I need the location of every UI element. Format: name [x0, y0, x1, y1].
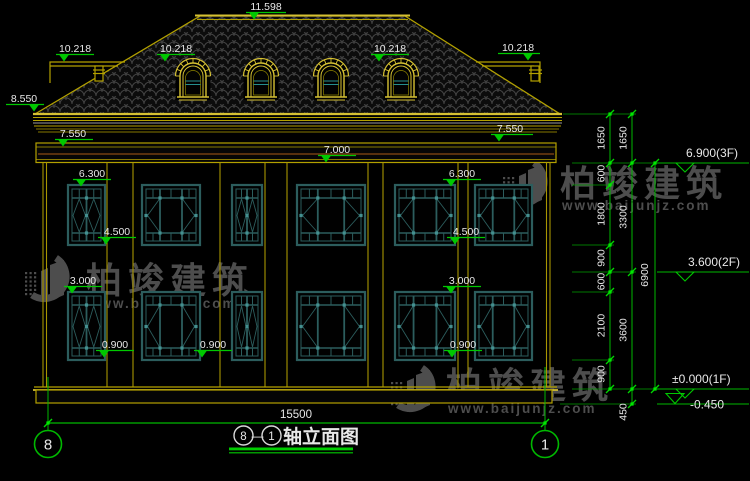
level-marker-label: 3.000	[70, 275, 96, 287]
window-grip	[245, 196, 248, 199]
window-grip	[245, 214, 248, 217]
window-grip	[412, 231, 415, 234]
level-marker-label: 0.900	[102, 339, 128, 351]
level-marker-label: 10.218	[59, 43, 91, 55]
window-grip	[343, 231, 346, 234]
dim-label: 1650	[596, 126, 608, 150]
dim-node	[608, 270, 611, 273]
window-grip	[85, 214, 88, 217]
window	[68, 292, 105, 360]
window	[395, 185, 455, 245]
window-grip	[180, 231, 183, 234]
window-grip	[158, 231, 161, 234]
window-grip	[513, 196, 516, 199]
window-grip	[85, 346, 88, 349]
level-marker-label: 10.218	[502, 42, 534, 54]
window-grip	[412, 346, 415, 349]
window-grip	[343, 346, 346, 349]
level-marker-label: 10.218	[374, 43, 406, 55]
level-marker-label: 4.500	[453, 226, 479, 238]
level-marker-label: 0.900	[200, 339, 226, 351]
title-text: 轴立面图	[283, 425, 359, 448]
window-grip	[359, 325, 362, 328]
dim-node	[608, 183, 611, 186]
dim-label: 3600	[618, 318, 630, 342]
window-grip	[477, 325, 480, 328]
axis-bubble-right-label: 1	[541, 437, 549, 454]
dim-node	[608, 112, 611, 115]
level-marker-label: 7.550	[497, 123, 523, 135]
window-grip	[316, 346, 319, 349]
dim-label: 900	[596, 365, 608, 383]
window-grip	[245, 231, 248, 234]
window-grip	[158, 346, 161, 349]
cad-elevation-screenshot: 柏竣建筑 www.baijunjz.com 柏竣建筑 www.baijunjz.…	[0, 0, 750, 481]
window-grip	[449, 214, 452, 217]
window	[395, 292, 455, 360]
window-grip	[526, 325, 529, 328]
level-marker-label: 3.000	[449, 275, 475, 287]
window-grip	[158, 196, 161, 199]
dim-node	[630, 161, 633, 164]
window-grip	[435, 231, 438, 234]
window-grip	[491, 303, 494, 306]
window-grip	[491, 196, 494, 199]
window-grip	[299, 214, 302, 217]
window-grip	[194, 214, 197, 217]
dim-label: 1650	[618, 126, 630, 150]
dim-label: 450	[618, 403, 630, 421]
dim-node	[608, 387, 611, 390]
window	[68, 185, 105, 245]
dim-node	[608, 358, 611, 361]
window-grip	[449, 325, 452, 328]
window-grip	[397, 214, 400, 217]
level-label-2F: 3.600(2F)	[688, 255, 740, 269]
window-grip	[435, 346, 438, 349]
elevation-drawing-canvas: 柏竣建筑 www.baijunjz.com 柏竣建筑 www.baijunjz.…	[0, 0, 750, 481]
window-grip	[491, 346, 494, 349]
dim-node	[630, 112, 633, 115]
window-grip	[85, 303, 88, 306]
window-grip	[412, 303, 415, 306]
window-grip	[144, 214, 147, 217]
window	[297, 185, 365, 245]
window-grip	[526, 214, 529, 217]
level-marker-label: 4.500	[104, 226, 130, 238]
level-marker-label: 7.000	[324, 144, 350, 156]
level-label-1F: ±0.000(1F)	[672, 372, 731, 386]
plinth	[33, 387, 558, 403]
dim-node	[653, 387, 656, 390]
window	[475, 292, 532, 360]
window-grip	[180, 346, 183, 349]
title-underline-thick	[229, 448, 353, 451]
window-grip	[435, 303, 438, 306]
window	[142, 185, 200, 245]
level-marker-label: 6.300	[449, 168, 475, 180]
dim-node	[630, 402, 633, 405]
dim-label: 6900	[639, 263, 651, 287]
window-grip	[180, 196, 183, 199]
dim-node	[608, 161, 611, 164]
window-grip	[513, 231, 516, 234]
window	[232, 185, 262, 245]
dim-node	[653, 161, 656, 164]
dim-label: 900	[596, 249, 608, 267]
window	[297, 292, 365, 360]
level-marker-label: 10.218	[160, 43, 192, 55]
window	[475, 185, 532, 245]
window-grip	[194, 325, 197, 328]
title-axis-from: 8	[240, 431, 246, 443]
window-grip	[299, 325, 302, 328]
level-marker-label: 6.300	[79, 168, 105, 180]
window-grip	[180, 303, 183, 306]
level-marker-label: 11.598	[250, 1, 281, 13]
window-grip	[158, 303, 161, 306]
window-grip	[397, 325, 400, 328]
dim-node	[630, 387, 633, 390]
window-grip	[412, 196, 415, 199]
window	[232, 292, 262, 360]
window-grip	[359, 214, 362, 217]
window-grip	[85, 231, 88, 234]
window-grip	[316, 196, 319, 199]
axis-bubble-left-label: 8	[44, 437, 52, 454]
window-grip	[343, 303, 346, 306]
level-marker-label: 7.550	[60, 128, 86, 140]
level-marker-label: 0.900	[450, 339, 476, 351]
window-grip	[245, 346, 248, 349]
window-grip	[144, 325, 147, 328]
window-grip	[435, 196, 438, 199]
overall-width-label: 15500	[280, 409, 312, 421]
title-axis-to: 1	[268, 431, 274, 443]
window-grip	[316, 303, 319, 306]
dim-node	[608, 290, 611, 293]
window-grip	[316, 231, 319, 234]
dim-node	[630, 270, 633, 273]
window-grip	[85, 325, 88, 328]
frieze-band	[36, 143, 556, 163]
window-grip	[85, 196, 88, 199]
window-grip	[491, 231, 494, 234]
window	[142, 292, 200, 360]
level-label-3F: 6.900(3F)	[686, 146, 738, 160]
dim-label: 600	[596, 273, 608, 291]
window-grip	[513, 346, 516, 349]
dim-label: 600	[596, 165, 608, 183]
dim-node	[608, 243, 611, 246]
level-label-ground: -0.450	[690, 398, 724, 412]
watermark-url: www.baijunjz.com	[561, 198, 711, 213]
dim-label: 3300	[618, 205, 630, 229]
window-grip	[343, 196, 346, 199]
window-grip	[245, 325, 248, 328]
window-grip	[513, 303, 516, 306]
window-grip	[477, 214, 480, 217]
window-grip	[245, 303, 248, 306]
level-marker-label: 8.550	[11, 93, 37, 105]
dim-label: 1800	[596, 202, 608, 226]
dim-label: 2100	[596, 314, 608, 338]
